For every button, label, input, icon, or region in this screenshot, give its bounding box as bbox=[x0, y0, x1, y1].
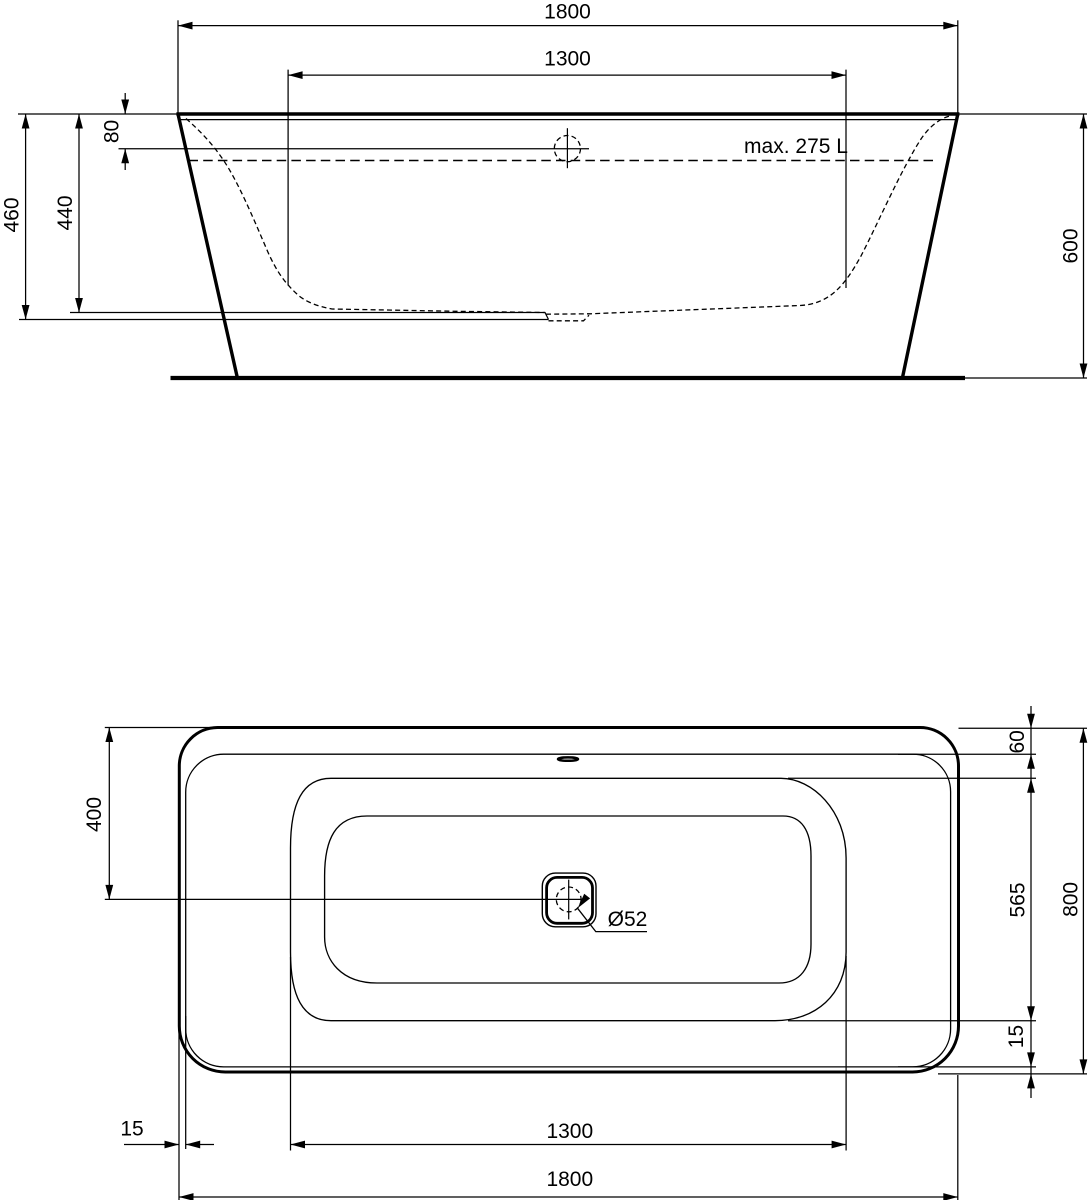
svg-text:600: 600 bbox=[1060, 228, 1083, 263]
svg-text:1300: 1300 bbox=[546, 1120, 593, 1143]
svg-text:1800: 1800 bbox=[544, 0, 591, 23]
svg-text:80: 80 bbox=[100, 120, 123, 143]
svg-text:1800: 1800 bbox=[546, 1168, 593, 1191]
svg-text:565: 565 bbox=[1007, 882, 1030, 917]
svg-text:1300: 1300 bbox=[544, 47, 591, 70]
svg-text:15: 15 bbox=[120, 1117, 143, 1140]
svg-text:Ø52: Ø52 bbox=[608, 908, 648, 931]
svg-text:60: 60 bbox=[1006, 730, 1029, 753]
svg-text:400: 400 bbox=[83, 797, 106, 832]
svg-text:460: 460 bbox=[1, 197, 24, 232]
svg-text:800: 800 bbox=[1059, 882, 1082, 917]
svg-text:max. 275 L: max. 275 L bbox=[744, 135, 848, 158]
svg-text:15: 15 bbox=[1005, 1025, 1028, 1048]
svg-text:440: 440 bbox=[54, 195, 77, 230]
